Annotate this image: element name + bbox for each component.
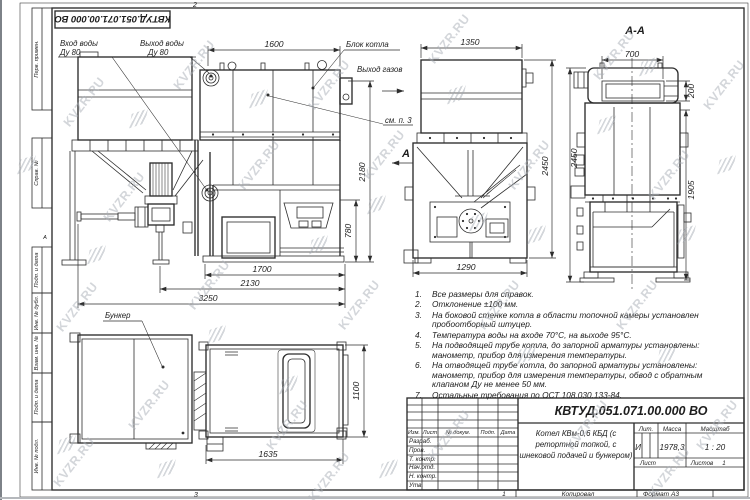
note-item: 4.Температура воды на входе 70°С, на вых… <box>415 331 741 340</box>
stamp-inv-podl: Инв. № подл. <box>34 439 40 474</box>
row-utv: Утв. <box>408 482 423 489</box>
note-item: 3.На боковой стенке котла в области топо… <box>415 311 741 330</box>
water-inlet-size: Ду 80 <box>59 48 81 57</box>
note-text: На подводящей трубе котла, до запорной а… <box>432 341 741 360</box>
view-section: А-А <box>571 25 691 292</box>
dim-sec-height: 2450 <box>569 148 579 168</box>
view-front <box>62 52 352 265</box>
note-text: Остальные требования по ОСТ 108.030.133-… <box>432 391 741 400</box>
section-title: А-А <box>624 25 645 37</box>
col-data: Дата <box>500 430 516 436</box>
note-number: 7. <box>415 391 432 400</box>
drawing-canvas: 2 3 А Перв. примен. Справ. № Подп. и дат… <box>0 0 750 500</box>
dim-side-height: 2450 <box>540 156 550 176</box>
scale-label: Масштаб <box>701 426 730 433</box>
scan-edge-left <box>0 0 2 500</box>
stamp-podp-data-2: Подп. и дата <box>34 379 40 414</box>
dim-front-b3: 3250 <box>198 293 217 303</box>
drawing-sheet: 2 3 А Перв. примен. Справ. № Подп. и дат… <box>0 0 750 500</box>
view-arrow-label: А <box>401 148 410 160</box>
dim-side-bottom: 1290 <box>456 262 475 272</box>
top-designation-stamp: КВТУД.051.071.00.000 ВО <box>54 11 171 28</box>
water-outlet-label: Выход воды <box>140 39 184 48</box>
sheets-value: 1 <box>722 460 725 467</box>
front-dimensions: 1600 2180 780 1700 2130 3250 <box>78 39 374 308</box>
note-item: 2.Отклонение ±100 мм. <box>415 300 741 309</box>
note-number: 6. <box>415 361 432 389</box>
view-plan: Бункер <box>70 311 348 451</box>
lit-label: Лит. <box>638 426 654 433</box>
plan-dimensions: 1635 1100 <box>206 345 368 464</box>
row-tkontr: Т. контр. <box>409 456 436 463</box>
zone-number-top: 2 <box>192 2 197 9</box>
dim-sec-body: 1905 <box>686 180 696 199</box>
col-izm: Изм. <box>408 430 420 436</box>
dim-sec-top: 700 <box>625 49 640 59</box>
mass-value: 1978,3 <box>659 443 684 452</box>
row-nachotd: Нач.отд. <box>409 464 435 471</box>
stamp-perv-primen: Перв. примен. <box>34 40 40 77</box>
row-razrab: Разраб. <box>409 438 431 445</box>
sheet-label: Лист <box>639 460 656 467</box>
title-block: КВТУД.051.071.00.000 ВО Котел КВм-0,6 КБ… <box>407 398 744 490</box>
scan-edge-bottom <box>0 497 750 499</box>
stamp-podp-data-1: Подп. и дата <box>34 252 40 287</box>
dim-plan-bottom: 1635 <box>258 449 277 459</box>
note-number: 2. <box>415 300 432 309</box>
view-side <box>404 60 535 263</box>
see-note-label: см. п. 3 <box>385 116 412 125</box>
stamp-vzam-inv: Взам. инв. № <box>34 336 40 371</box>
note-text: На боковой стенке котла в области топочн… <box>432 311 741 330</box>
dim-plan-side: 1100 <box>351 382 361 401</box>
note-text: Отклонение ±100 мм. <box>432 300 741 309</box>
water-inlet-label: Вход воды <box>60 39 98 48</box>
note-text: Все размеры для справок. <box>432 290 741 299</box>
doc-designation: КВТУД.051.071.00.000 ВО <box>555 404 708 418</box>
note-number: 5. <box>415 341 432 360</box>
note-item: 5.На подводящей трубе котла, до запорной… <box>415 341 741 360</box>
scale-value: 1 : 20 <box>705 443 726 452</box>
dim-side-top: 1350 <box>460 37 479 47</box>
top-designation-text: КВТУД.051.071.00.000 ВО <box>54 13 171 24</box>
note-text: Температура воды на входе 70°С, на выход… <box>432 331 741 340</box>
gas-outlet-label: Выход газов <box>357 65 402 74</box>
row-prov: Пров. <box>409 447 425 454</box>
col-podp: Подп. <box>481 430 496 436</box>
stamp-inv-dubl: Инв. № дубл. <box>34 296 40 330</box>
note-item: 7.Остальные требования по ОСТ 108.030.13… <box>415 391 741 400</box>
note-item: 6.На отводящей трубе котла, до запорной … <box>415 361 741 389</box>
row-nkontr: Н. контр. <box>409 473 437 480</box>
note-number: 3. <box>415 311 432 330</box>
note-item: 1.Все размеры для справок. <box>415 290 741 299</box>
dim-front-ash: 780 <box>343 224 353 239</box>
doc-name-line1: Котел КВм-0,6 КБД (с <box>536 429 617 438</box>
fold-mark: А <box>42 235 47 241</box>
mass-label: Масса <box>663 426 682 433</box>
doc-name-line2: ретортной топкой, с <box>535 440 617 449</box>
note-number: 4. <box>415 331 432 340</box>
doc-name-line3: шнековой подачей и бункером) <box>519 451 632 460</box>
water-outlet-size: Ду 80 <box>147 48 169 57</box>
dim-front-top: 1600 <box>264 39 283 49</box>
col-list: Лист <box>422 430 438 436</box>
sheets-label: Листов <box>690 460 714 467</box>
lit-value: И <box>635 443 641 452</box>
dim-sec-window: 200 <box>686 84 696 100</box>
note-number: 1. <box>415 290 432 299</box>
bunker-label: Бункер <box>105 311 131 320</box>
boiler-block-label: Блок котла <box>346 40 389 49</box>
left-stamp-column: Перв. примен. Справ. № Подп. и дата Инв.… <box>32 8 52 490</box>
sheet-frame: 2 3 А <box>20 2 748 499</box>
notes-list: 1.Все размеры для справок. 2.Отклонение … <box>415 290 741 401</box>
note-text: На отводящей трубе котла, до запорной ар… <box>432 361 741 389</box>
stamp-sprav-no: Справ. № <box>34 160 40 185</box>
col-doc: № докум. <box>446 430 471 436</box>
dim-front-height: 2180 <box>357 162 367 182</box>
dim-front-b2: 2130 <box>239 278 259 288</box>
dim-front-b1: 1700 <box>252 264 271 274</box>
